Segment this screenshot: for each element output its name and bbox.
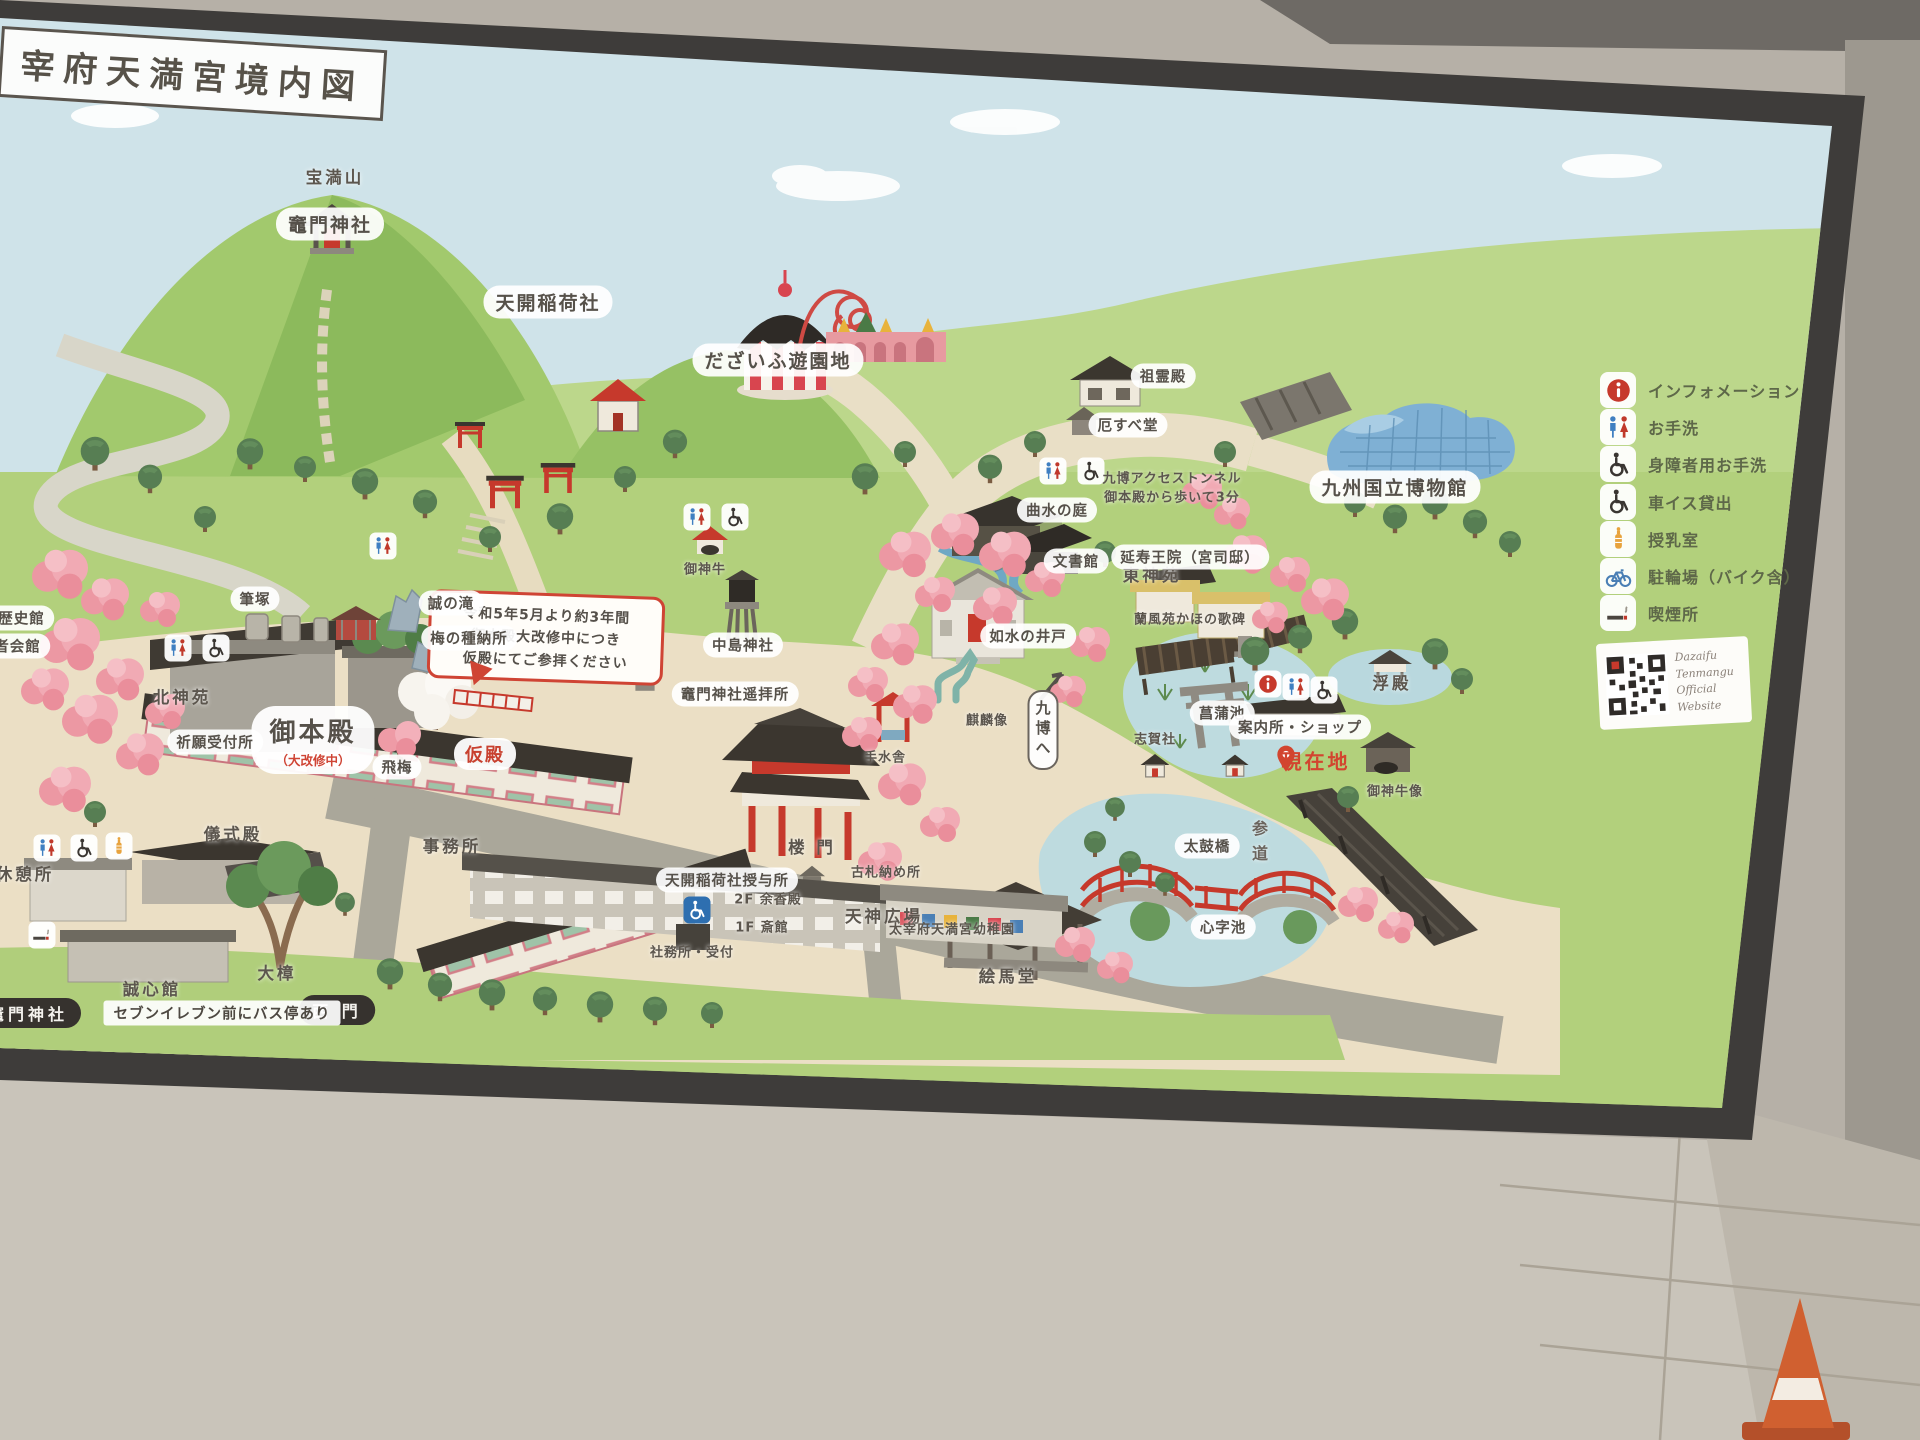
map-label-seishinkan: 誠心館 [123,976,182,1000]
map-label-kirin-zo: 麒麟像 [966,710,1008,729]
smoking-icon [1600,595,1636,631]
legend-item-label: お手洗 [1648,415,1699,439]
map-label-shamusho-uketsuke: 社務所・受付 [650,942,734,961]
map-label-genzaichi: 現在地 [1282,746,1351,775]
map-label-josui-no-ido: 如水の井戸 [980,624,1076,649]
map-label-shiga-sha: 志賀社 [1134,729,1176,748]
legend-item-4: 授乳室 [1600,521,1699,557]
info-icon [1255,671,1282,698]
toilet-icon [1600,409,1636,445]
map-label-sando: 参道 [1246,820,1270,870]
map-label-kanko-rekishikan: 菅公歴史館 [0,606,54,631]
nursing-icon [106,833,133,860]
toilet-icon [1283,674,1310,701]
legend-item-label: 授乳室 [1648,527,1699,551]
qr-caption-line2: Official Website [1676,679,1744,715]
toilet-icon [34,835,61,862]
map-label-kyukeijo: 休憩所 [0,861,54,885]
wheelchair-icon [71,835,98,862]
map-label-gishikiden: 儀式殿 [204,821,263,845]
map-label-yokoden-2f: 2F 余香殿 [734,889,801,908]
map-label-ukidono: 浮殿 [1373,670,1412,694]
map-label-kyuhaku-access-tunnel: 九博アクセストンネル [1102,468,1241,487]
qr-card: Dazaifu Tenmangu Official Website [1596,636,1752,730]
legend-item-1: お手洗 [1600,409,1699,445]
bicycle-icon [1600,558,1636,594]
map-label-nakashima-jinja: 中島神社 [703,633,783,658]
map-label-ume-no-tane-osamedokoro: 梅の種納所 [421,626,517,651]
map-label-jimusho: 事務所 [423,833,482,857]
map-label-saikan-1f: 1F 斎館 [735,917,788,936]
toilet-icon [165,635,192,662]
map-label-temizusha: 手水舎 [864,747,906,766]
qr-code-icon [1604,652,1669,717]
map-label-taiko-bashi: 太鼓橋 [1175,834,1240,859]
map-label-okusu: 大樟 [258,960,297,984]
legend-item-2: 身障者用お手洗 [1600,446,1767,482]
map-label-kamado-jinja-bus-badge: 竈門神社 [0,998,81,1028]
wheelchair-icon [1600,446,1636,482]
legend-item-label: 駐輪場（バイク含） [1648,564,1801,588]
wheelchair-icon [203,635,230,662]
toilet-icon [684,504,711,531]
legend-item-label: 車イス貸出 [1648,490,1733,514]
map-label-kyuhaku-e: 九博へ [1028,690,1059,770]
map-label-tenkai-inari-sha: 天開稲荷社 [483,286,612,319]
wheelchair-icon [1600,484,1636,520]
map-label-kariden: 仮殿 [454,738,516,770]
map-label-sukeisha-kaikan: 崇敬者会館 [0,634,50,659]
map-label-tobiume: 飛梅 [373,755,422,780]
legend-item-0: インフォメーション [1600,372,1800,408]
map-label-kita-shin-en: 北神苑 [153,684,212,708]
legend-item-6: 喫煙所 [1600,595,1699,631]
map-label-yakusube-do: 厄すべ堂 [1089,413,1168,438]
map-label-emado: 絵馬堂 [979,963,1038,987]
ceiling-beam [1260,0,1920,52]
legend-item-5: 駐輪場（バイク含） [1600,558,1801,594]
map-label-kigan-uketsukejo: 祈願受付所 [167,730,263,755]
toilet-icon [1040,458,1067,485]
photo-of-shrine-map-signboard: 宰府天満宮境内図 令和5年5月より約3年間御本殿大改修中につき仮殿にてご参拝くだ… [0,0,1920,1440]
map-label-kahi: 蘭風苑かほの歌碑 [1134,609,1246,628]
map-label-annaijo-shop: 案内所・ショップ [1229,715,1371,740]
map-label-fudezuka: 筆塚 [231,587,280,612]
qr-caption-line1: Dazaifu Tenmangu [1674,646,1742,682]
map-label-bunshokan: 文書館 [1044,549,1109,574]
toilet-icon [370,533,397,560]
map-label-kamado-jinja: 竈門神社 [276,208,384,241]
legend-item-label: 喫煙所 [1648,601,1699,625]
smoking-icon [29,922,56,949]
wheelchair-icon [1311,677,1338,704]
legend-item-3: 車イス貸出 [1600,484,1733,520]
map-label-gohonden: 御本殿（大改修中） [251,706,374,774]
legend-item-label: 身障者用お手洗 [1648,452,1767,476]
map-label-kyokusui-no-niwa: 曲水の庭 [1017,498,1097,523]
map-label-kyushu-national-museum: 九州国立博物館 [1309,471,1480,504]
map-label-homanzan: 宝満山 [306,164,365,188]
map-label-gohonden-sub: （大改修中） [269,750,356,769]
map-label-goshingyu: 御神牛 [684,559,726,578]
map-label-bus-note: セブンイレブン前にバス停あり [104,1001,341,1026]
nursing-icon [1600,521,1636,557]
map-label-romon: 楼 門 [788,834,836,858]
legend-item-label: インフォメーション [1648,378,1800,402]
map-label-yochien: 太宰府天満宮幼稚園 [889,919,1015,938]
map-label-goshingyu-zo: 御神牛像 [1367,781,1423,800]
map-label-enjuoin: 延寿王院（宮司邸） [1111,545,1269,570]
wheelchair-icon [1078,458,1105,485]
info-icon [1600,372,1636,408]
map-label-dazaifu-yuenchi: だざいふ遊園地 [692,344,863,377]
qr-caption: Dazaifu Tenmangu Official Website [1674,646,1743,715]
map-label-soreiden: 祖霊殿 [1131,364,1196,389]
map-label-shinji-ike: 心字池 [1191,915,1256,940]
accessible-sign-icon [684,897,711,924]
map-label-tunnel-note: 御本殿から歩いて3分 [1104,487,1240,506]
map-label-kamado-jinja-yohaijo: 竈門神社遥拝所 [672,682,799,707]
map-label-makoto-no-taki: 誠の滝 [419,591,484,616]
wheelchair-icon [722,504,749,531]
map-label-kosatsu-osamedokoro: 古札納め所 [851,862,921,881]
